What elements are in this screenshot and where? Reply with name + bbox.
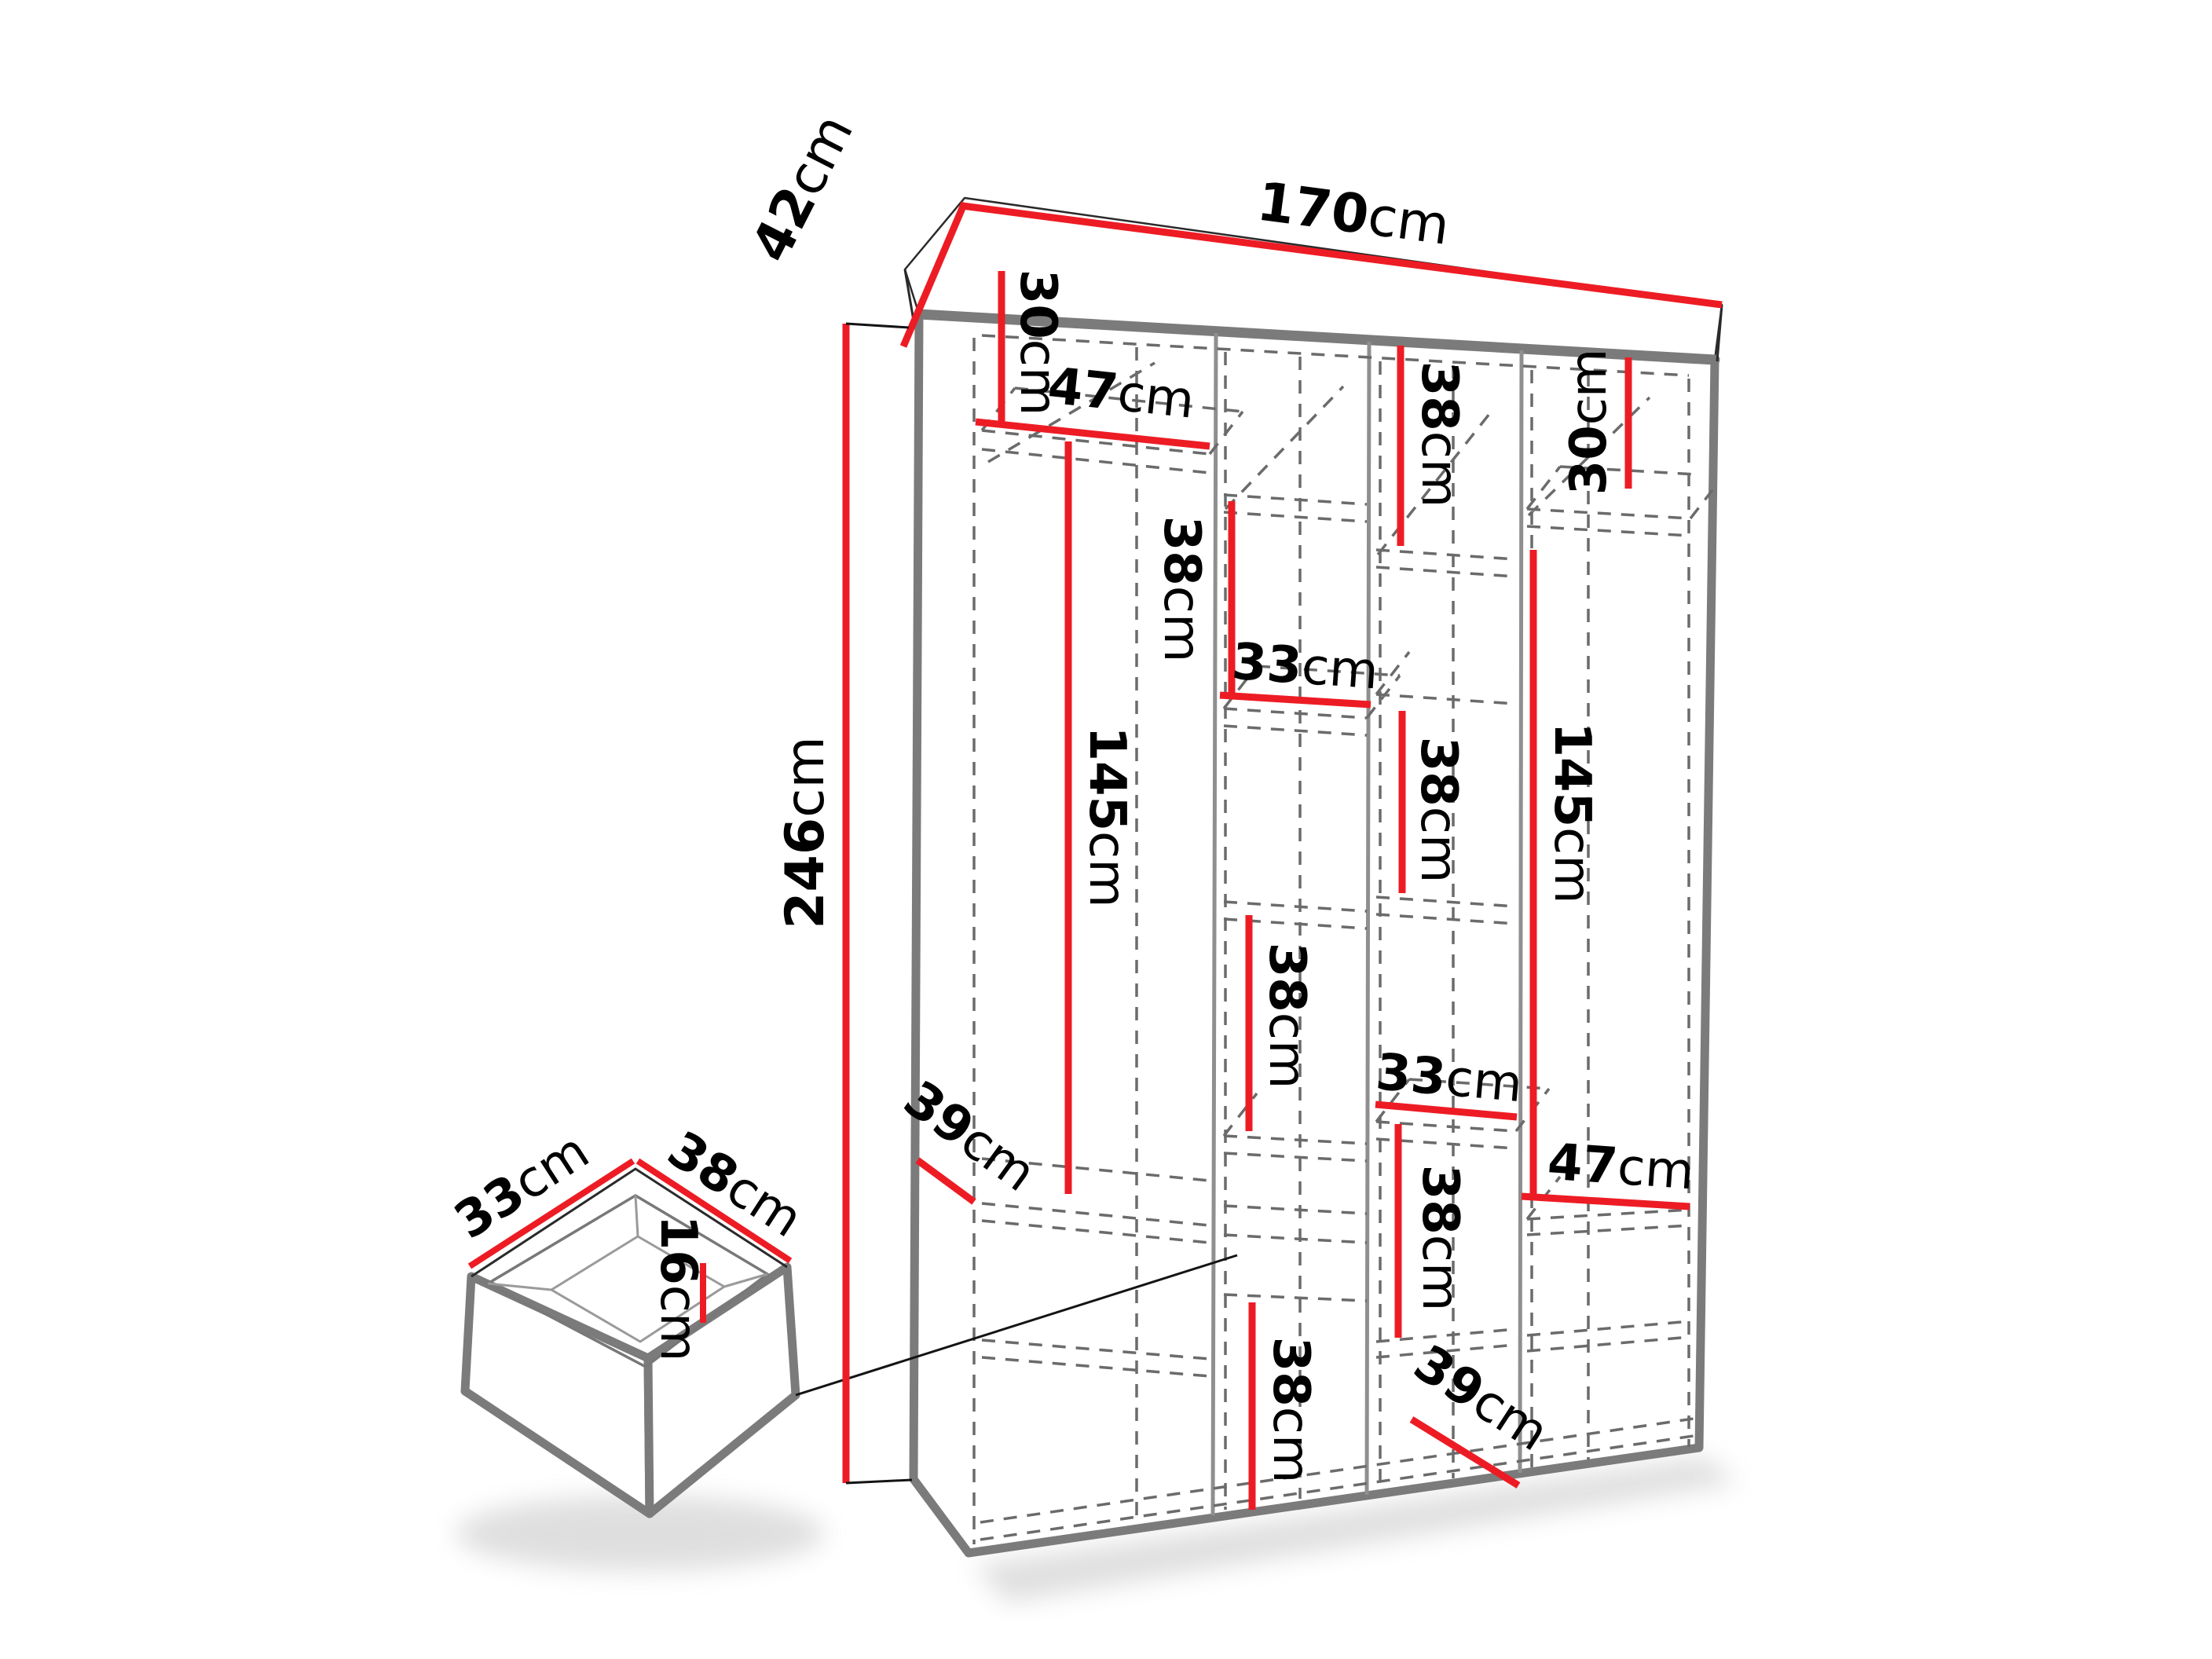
label-col3-38-top: 38cm: [1410, 361, 1468, 508]
label-col4-145: 145cm: [1543, 722, 1601, 903]
label-height-246: 246cm: [775, 736, 837, 929]
label-col2-38-lower: 38cm: [1262, 1337, 1320, 1484]
diagram-canvas: 170cm 42cm 246cm 30cm 47cm 145cm 38cm 33…: [0, 0, 2212, 1659]
label-col4-47: 47cm: [1546, 1133, 1696, 1202]
label-col4-30: 30cm: [1560, 349, 1618, 496]
dim-246-end-ticks: [846, 324, 912, 1483]
drawer-front-left-face: [465, 1276, 650, 1514]
label-depth-42: 42cm: [740, 105, 866, 273]
label-col3-38-lower: 38cm: [1411, 1165, 1469, 1312]
label-col2-33: 33cm: [1230, 633, 1380, 701]
label-col2-38-middle: 38cm: [1258, 943, 1316, 1090]
label-col2-38-upper: 38cm: [1152, 516, 1210, 663]
wardrobe-dimension-diagram: 170cm 42cm 246cm 30cm 47cm 145cm 38cm 33…: [0, 0, 2212, 1659]
label-col3-38-middle: 38cm: [1409, 737, 1467, 884]
label-drawer-16: 16cm: [649, 1215, 707, 1362]
label-col1-145: 145cm: [1078, 726, 1136, 907]
